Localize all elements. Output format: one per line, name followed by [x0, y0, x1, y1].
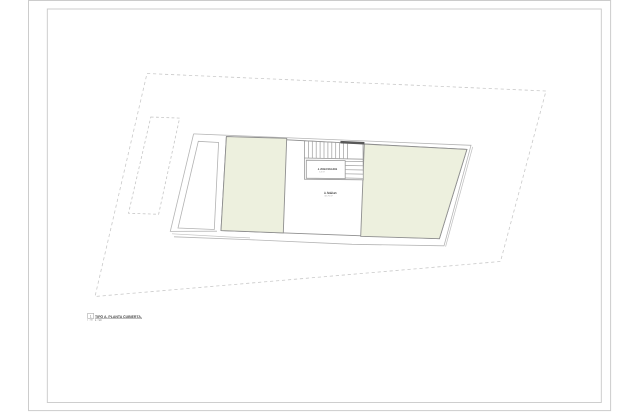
svg-text:1 : 50: 1 : 50	[87, 319, 94, 322]
svg-text:A. ZONA ESCALERA: A. ZONA ESCALERA	[318, 167, 338, 171]
svg-text:1: 1	[90, 315, 92, 319]
svg-text:5.20 m²: 5.20 m²	[319, 170, 325, 173]
svg-text:A. Solárium: A. Solárium	[324, 191, 337, 195]
svg-text:48.75 m²: 48.75 m²	[324, 195, 333, 198]
svg-text:1 : 50: 1 : 50	[95, 319, 102, 322]
